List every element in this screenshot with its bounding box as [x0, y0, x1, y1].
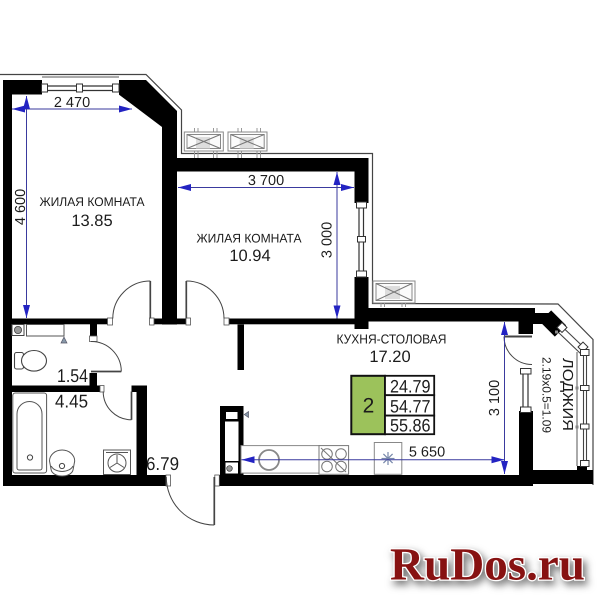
svg-text:10.94: 10.94: [229, 247, 270, 265]
svg-text:2 470: 2 470: [54, 95, 90, 111]
svg-text:1.54: 1.54: [57, 365, 88, 386]
svg-text:КУХНЯ-СТОЛОВАЯ: КУХНЯ-СТОЛОВАЯ: [337, 332, 447, 347]
svg-text:55.86: 55.86: [390, 416, 431, 436]
svg-text:4 600: 4 600: [13, 189, 29, 225]
svg-text:3 000: 3 000: [320, 222, 336, 258]
svg-text:ЛОДЖИЯ: ЛОДЖИЯ: [559, 358, 575, 431]
svg-text:ЖИЛАЯ КОМНАТА: ЖИЛАЯ КОМНАТА: [40, 195, 146, 209]
svg-text:6.79: 6.79: [146, 453, 179, 474]
svg-text:2: 2: [363, 395, 375, 418]
svg-text:ЖИЛАЯ КОМНАТА: ЖИЛАЯ КОМНАТА: [197, 232, 303, 246]
svg-text:24.79: 24.79: [390, 377, 431, 397]
svg-text:RuDos.ru: RuDos.ru: [390, 539, 585, 590]
svg-text:54.77: 54.77: [390, 397, 431, 417]
svg-text:3 100: 3 100: [487, 380, 503, 416]
svg-text:4.45: 4.45: [55, 391, 88, 412]
svg-text:17.20: 17.20: [369, 348, 410, 366]
svg-text:3 700: 3 700: [248, 173, 284, 189]
svg-text:2.19х0.5=1.09: 2.19х0.5=1.09: [540, 357, 554, 433]
svg-text:13.85: 13.85: [71, 212, 112, 230]
svg-text:5 650: 5 650: [409, 445, 445, 461]
